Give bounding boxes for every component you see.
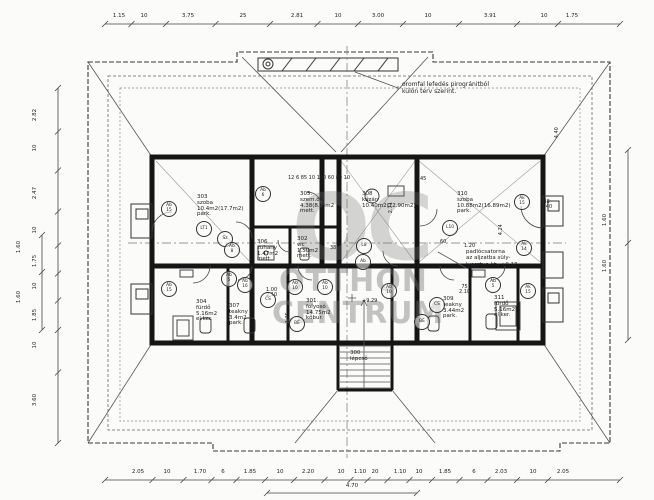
fixture-circle: L8 [356,238,372,254]
inner-dim-label: 45 [420,177,426,182]
dim-label: 10 [529,13,559,19]
fixture-circle: Ab [355,254,371,270]
inner-dim-label: 1.20 [464,244,475,249]
floorplan-canvas: OC OTTHON CENTRUM oromfal lefedés pirogr… [0,0,654,500]
room-label: 301.folyosó14.75m2kőbur. [306,299,331,322]
inner-dim-label: 12 6 85 10 100 60 80 10 [288,176,350,181]
room-label: 305.szem.ölt.4.38(8.4)m2mett. [300,192,334,215]
room-label: 309teakny3.44m2park. [443,297,464,320]
room-label: 307teakny3.4m2park. [229,304,248,327]
fixture-circle: Ak15 [514,194,530,210]
inner-dim-label: 38 [330,246,336,251]
fixture-circle: LT1 [196,221,212,237]
fixture-circle: Ab8 [224,242,240,258]
fixture-circle: Ab5 [221,271,237,287]
inner-dim-label: +9.29 [362,299,377,304]
dim-label: 3.60 [32,385,38,415]
fixture-circle: Ab15 [161,201,177,217]
label-layer: 1.15103.75252.81103.00103.91101.752.0510… [0,0,654,500]
dim-label: 10 [413,13,443,19]
dim-label: 1.60 [602,205,608,235]
dim-label: 6 [459,469,489,475]
dim-label: 10 [32,215,38,245]
inner-dim-label: 752.10 [459,285,470,296]
dim-label: 10 [265,469,295,475]
dim-label: 3.00 [363,13,393,19]
room-label: 308kazán10.40m2(12.90m2) [362,192,416,209]
fixture-circle: Ab5 [485,277,501,293]
fixture-circle: Ab10 [287,279,303,295]
dim-label: 1.85 [235,469,265,475]
dim-label: 1.60 [602,251,608,281]
fixture-circle: L10 [442,220,458,236]
room-label: 303szoba10.4m2(17.7m2)park. [197,195,244,218]
fixture-circle: Ak14 [516,240,532,256]
fixture-circle: BÉ [414,314,430,330]
dim-label: 4.70 [337,483,367,489]
dim-label: 2.05 [548,469,578,475]
inner-dim-label: 60 [440,240,446,245]
dim-label: 10 [129,13,159,19]
dim-label: 1.85 [430,469,460,475]
dim-label: 1.60 [16,232,22,262]
fixture-circle: Ab15 [161,281,177,297]
fixture-circle: BÉ [289,316,305,332]
dim-label: 10 [323,13,353,19]
fixture-circle: Ab16 [237,277,253,293]
inner-dim-label: 381.40 [541,200,552,211]
dim-label: 1.85 [32,300,38,330]
dim-label: 3.91 [475,13,505,19]
dim-label: 10 [32,133,38,163]
room-label: 304fürdő5.16m2el.ker. [196,300,217,323]
fixture-circle: CS [429,297,445,313]
dim-label: 2.05 [123,469,153,475]
room-label: 311fürdő5.16m2el.ker. [494,296,515,319]
fixture-circle: Ab6 [255,186,271,202]
dim-label: 10 [518,469,548,475]
dim-label: 25 [228,13,258,19]
dim-label: 10 [32,330,38,360]
dim-label: 6 [208,469,238,475]
fixture-circle: CS [260,292,276,308]
dim-label: 10 [152,469,182,475]
inner-dim-label: 4.24 [499,224,504,235]
fixture-circle: Ab10 [317,279,333,295]
fixture-circle: Ak15 [520,283,536,299]
dim-label: 2.82 [32,100,38,130]
dim-label: 2.81 [282,13,312,19]
inner-dim-label: 4.40 [555,127,560,138]
dim-label: 2.47 [32,178,38,208]
room-label: 306zuhany1.47m2mett. [257,240,278,263]
dim-label: 1.60 [16,282,22,312]
fixture-circle: Ab10 [381,283,397,299]
dim-label: 10 [32,271,38,301]
dim-label: 2.20 [293,469,323,475]
room-label: 302wc1.50m2mett. [297,237,318,260]
dim-label: 2.03 [486,469,516,475]
dim-label: 3.75 [173,13,203,19]
room-label: 310szoba10.88m2(16.89m2)park. [457,192,511,215]
dim-label: 1.75 [557,13,587,19]
room-label: 300lépcső [350,351,368,363]
